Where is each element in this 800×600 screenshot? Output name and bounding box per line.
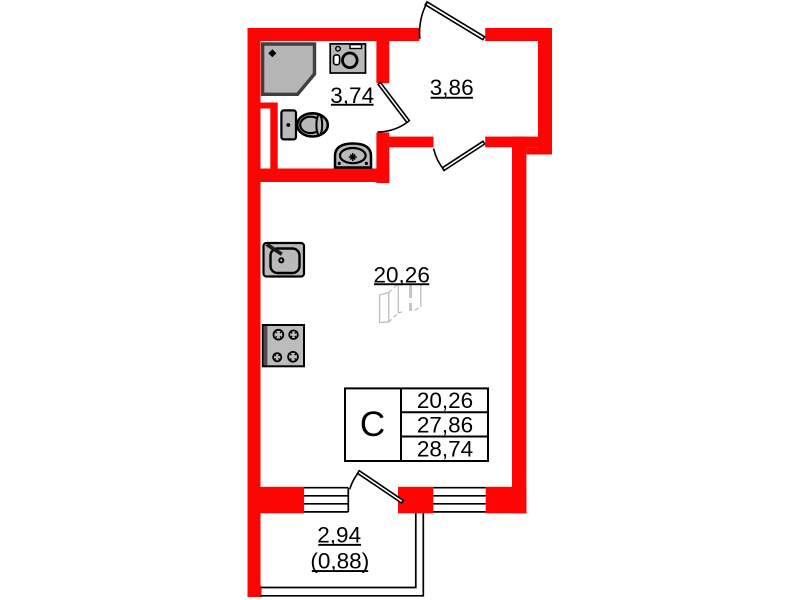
svg-text:3,86: 3,86 — [430, 75, 474, 100]
svg-text:(0,88): (0,88) — [310, 548, 369, 573]
svg-text:20,26: 20,26 — [417, 388, 473, 413]
svg-text:28,74: 28,74 — [417, 437, 473, 462]
svg-text:С: С — [360, 405, 385, 444]
svg-text:2,94: 2,94 — [317, 523, 361, 548]
svg-text:27,86: 27,86 — [417, 412, 473, 437]
